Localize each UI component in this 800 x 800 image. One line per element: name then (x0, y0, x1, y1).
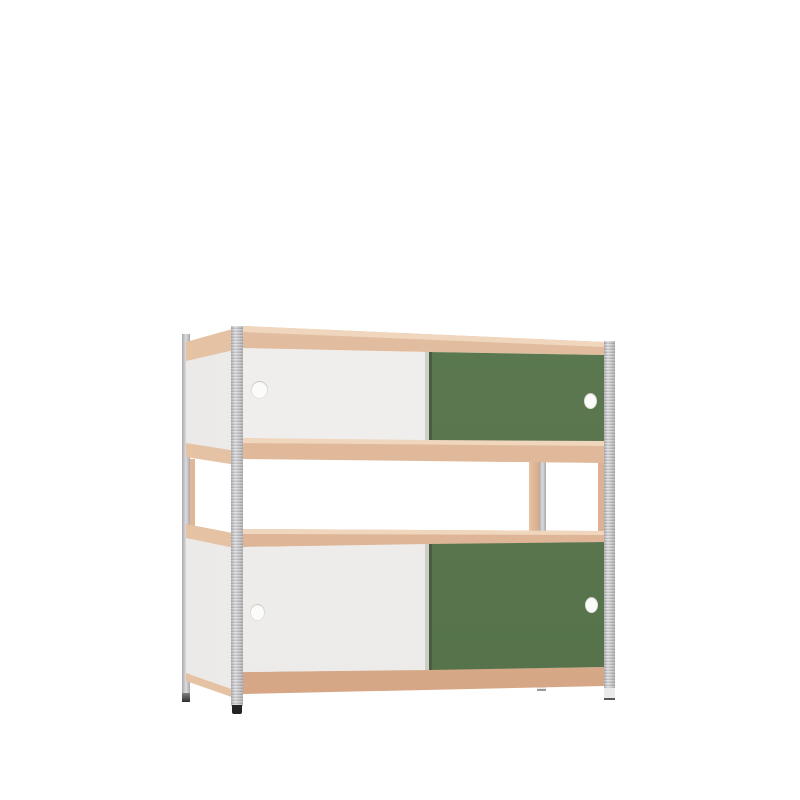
upper-green-door-finger-hole (584, 393, 597, 409)
lower-white-door-finger-hole (250, 604, 265, 621)
left-back-panel-edge (190, 459, 195, 526)
rear-right-corner-wood-edge (529, 457, 539, 533)
upper-white-door-finger-hole (251, 381, 268, 399)
front-right-post-foot (604, 688, 615, 700)
front-right-frame-post (604, 341, 615, 689)
rear-right-frame-post (539, 457, 546, 533)
front-left-frame-post (231, 326, 243, 706)
front-left-post-foot (232, 705, 242, 714)
rear-left-post-foot (182, 693, 190, 702)
lower-green-door-finger-hole (585, 597, 598, 613)
product-render-stage (0, 0, 800, 800)
